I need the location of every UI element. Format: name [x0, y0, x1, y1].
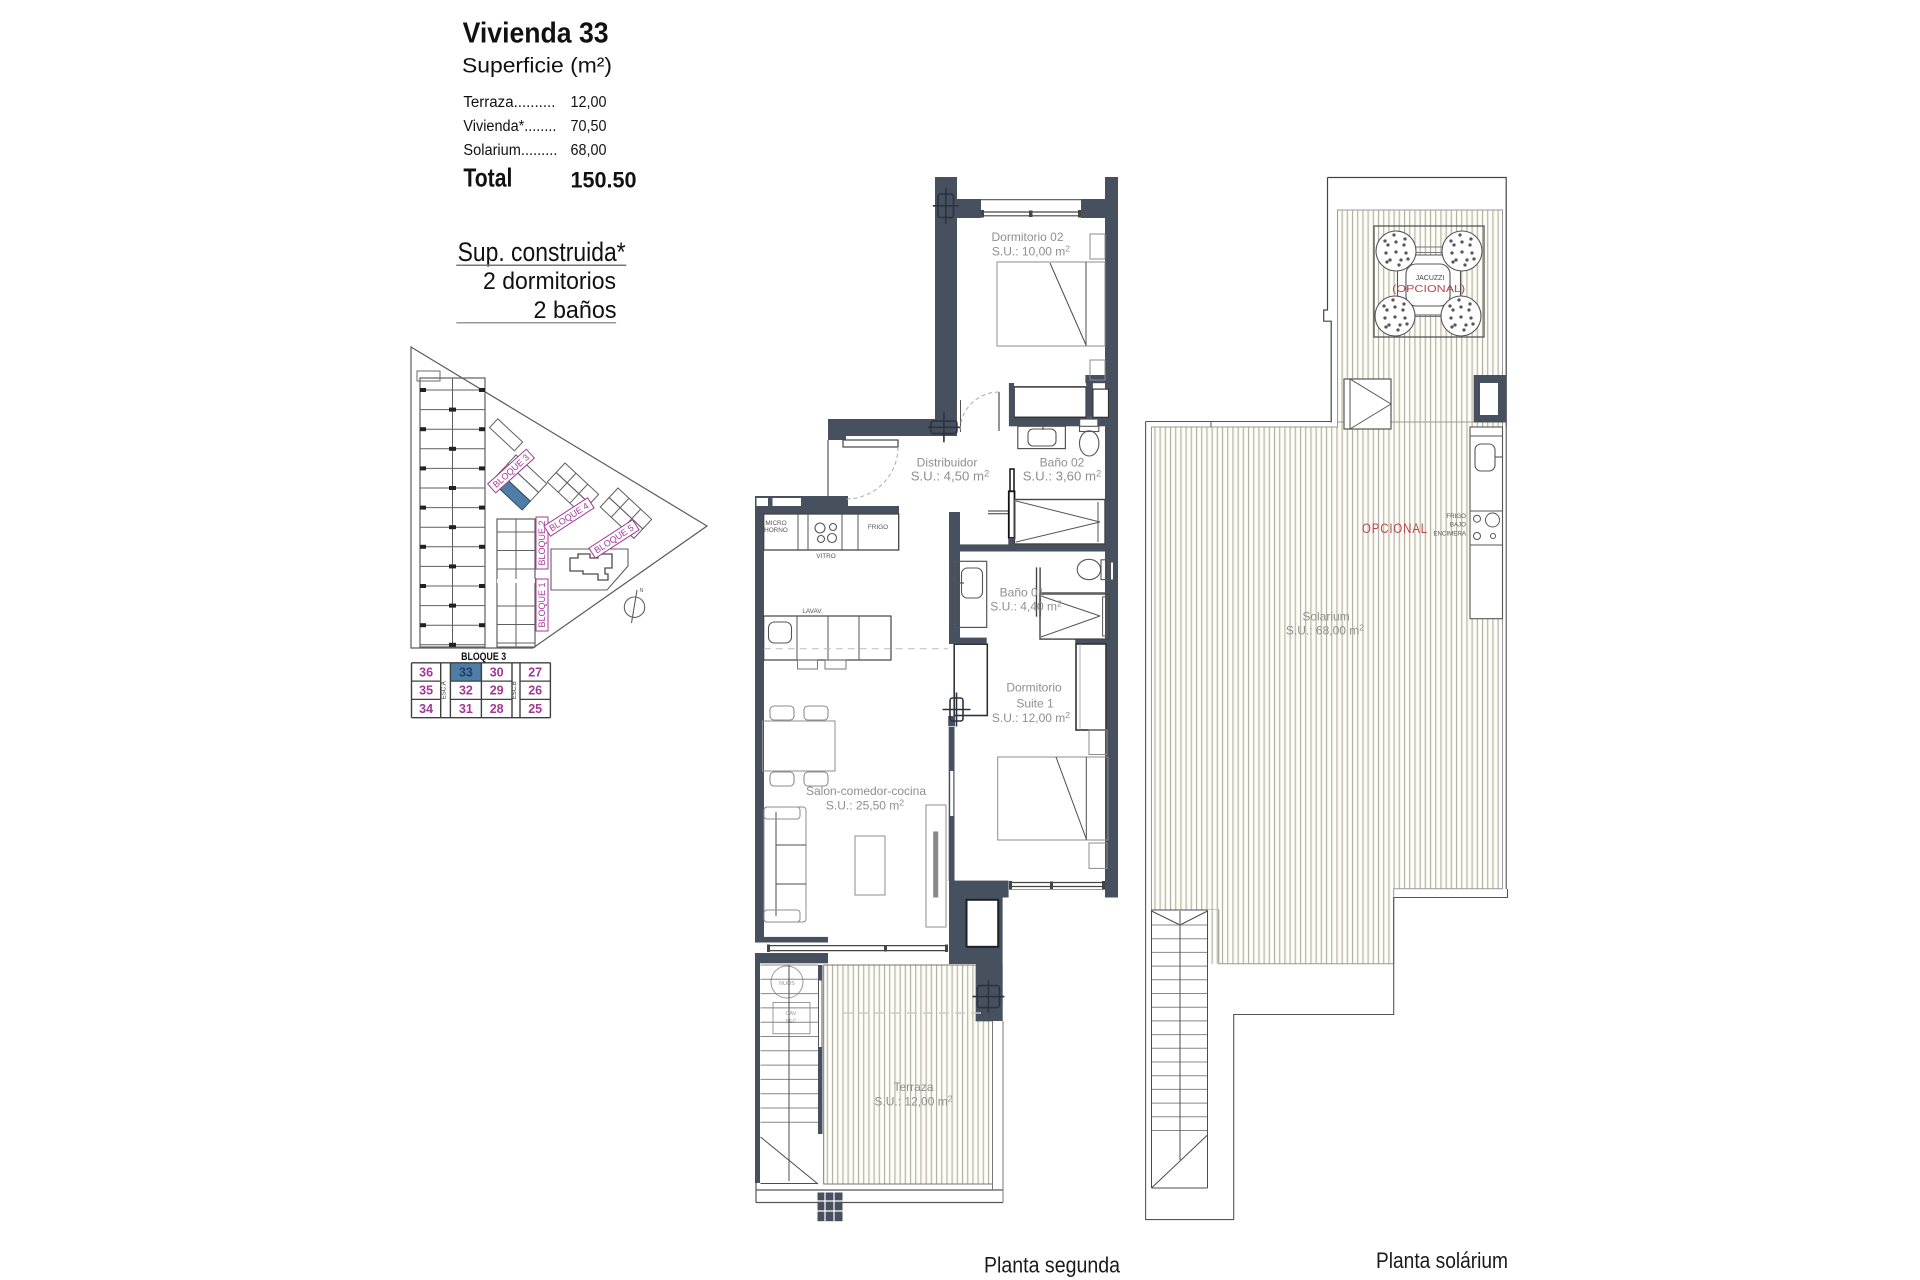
svg-text:33: 33 [459, 665, 473, 679]
svg-text:Solarium: Solarium [1302, 610, 1349, 624]
svg-text:29: 29 [490, 684, 504, 698]
svg-text:Baño 02: Baño 02 [1040, 456, 1085, 470]
svg-text:ENCIMERA: ENCIMERA [1433, 531, 1467, 538]
svg-text:(OPCIONAL): (OPCIONAL) [1392, 283, 1465, 295]
svg-text:150.50: 150.50 [571, 167, 637, 192]
svg-text:BAJO: BAJO [1450, 522, 1466, 529]
svg-text:36: 36 [419, 665, 433, 679]
svg-text:Planta solárium: Planta solárium [1376, 1248, 1508, 1273]
svg-text:70,50: 70,50 [571, 118, 607, 135]
svg-text:S.U.: 68,00 m2: S.U.: 68,00 m2 [1286, 623, 1364, 638]
svg-text:34: 34 [419, 702, 433, 716]
svg-text:31: 31 [459, 702, 473, 716]
svg-text:S.U.: 25,50 m2: S.U.: 25,50 m2 [826, 798, 904, 813]
svg-text:Solarium.........: Solarium......... [463, 142, 557, 159]
svg-text:12,00: 12,00 [571, 94, 607, 111]
svg-text:OPCIONAL: OPCIONAL [1362, 521, 1428, 536]
svg-text:27: 27 [528, 665, 542, 679]
svg-text:Distribuidor: Distribuidor [917, 456, 978, 470]
svg-text:2 dormitorios: 2 dormitorios [483, 268, 616, 295]
svg-text:S.U.: 3,60 m2: S.U.: 3,60 m2 [1023, 469, 1102, 484]
svg-text:28: 28 [490, 702, 504, 716]
svg-text:MICRO: MICRO [765, 520, 786, 527]
svg-text:S.U.: 4,50 m2: S.U.: 4,50 m2 [911, 469, 990, 484]
svg-text:Planta segunda: Planta segunda [984, 1253, 1121, 1278]
svg-text:CAV: CAV [786, 1011, 797, 1017]
svg-text:ESC.B: ESC.B [512, 681, 518, 699]
svg-text:Terraza: Terraza [893, 1080, 933, 1094]
svg-text:LAVAV.: LAVAV. [802, 608, 823, 615]
svg-text:Total: Total [463, 163, 512, 193]
svg-text:Dormitorio 02: Dormitorio 02 [991, 230, 1063, 244]
svg-text:NUOS: NUOS [779, 981, 795, 987]
svg-text:S.U.: 12,00 m2: S.U.: 12,00 m2 [874, 1094, 952, 1109]
svg-text:Salon-comedor-cocina: Salon-comedor-cocina [806, 784, 926, 798]
svg-text:Vivienda 33: Vivienda 33 [463, 18, 609, 50]
svg-text:Dormitorio: Dormitorio [1006, 681, 1062, 695]
svg-text:Sup. construida*: Sup. construida* [458, 237, 626, 267]
svg-text:S.U.: 12,00 m2: S.U.: 12,00 m2 [992, 710, 1070, 725]
svg-text:ESC.A: ESC.A [442, 681, 448, 699]
svg-text:Superficie (m²): Superficie (m²) [462, 55, 612, 78]
svg-text:FRIGO: FRIGO [868, 524, 888, 531]
svg-text:S.U.: 4,40 m2: S.U.: 4,40 m2 [990, 599, 1062, 614]
svg-text:BLOQUE 1: BLOQUE 1 [537, 582, 547, 627]
svg-text:HORNO: HORNO [764, 527, 788, 534]
svg-text:32: 32 [459, 684, 473, 698]
svg-text:Terraza..........: Terraza.......... [463, 94, 555, 111]
svg-text:25: 25 [528, 702, 542, 716]
svg-text:VITRO: VITRO [816, 553, 836, 560]
svg-text:26: 26 [528, 684, 542, 698]
svg-text:JACUZZI: JACUZZI [1416, 275, 1445, 282]
svg-text:68,00: 68,00 [571, 142, 607, 159]
svg-text:Vivienda*........: Vivienda*........ [463, 118, 556, 135]
svg-text:S.U.: 10,00 m2: S.U.: 10,00 m2 [992, 244, 1070, 259]
svg-text:BLOQUE 3: BLOQUE 3 [461, 651, 506, 663]
svg-text:N: N [640, 588, 644, 594]
svg-text:FRIGO: FRIGO [1446, 513, 1466, 520]
svg-text:Suite 1: Suite 1 [1016, 697, 1054, 711]
svg-text:30: 30 [490, 665, 504, 679]
svg-text:Baño 01: Baño 01 [1000, 586, 1045, 600]
svg-text:2 baños: 2 baños [534, 297, 617, 324]
svg-text:35: 35 [419, 684, 433, 698]
